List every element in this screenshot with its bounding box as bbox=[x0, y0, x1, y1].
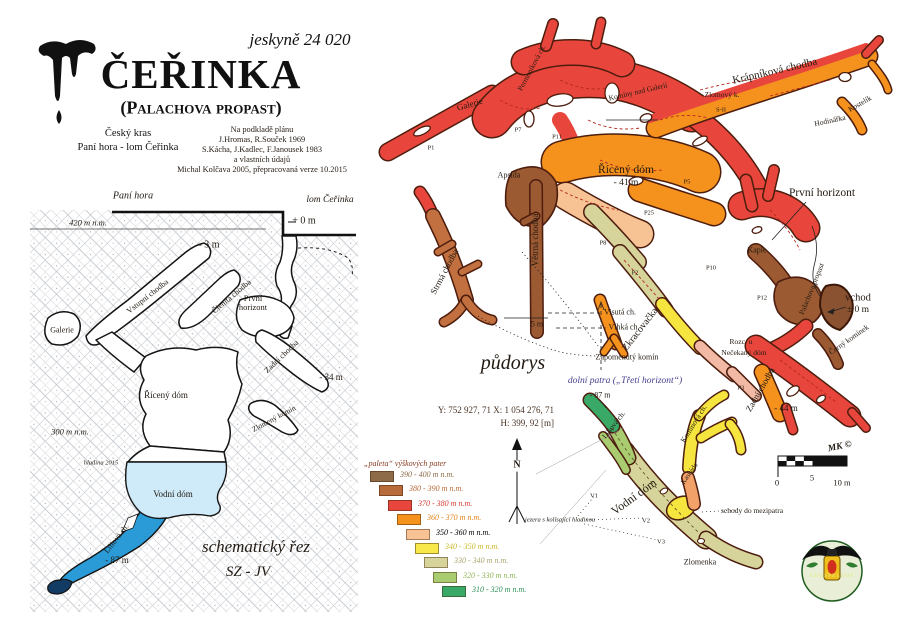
survey-coordinates: Y: 752 927, 71 X: 1 054 276, 71 H: 399, … bbox=[438, 404, 554, 430]
lower-title: dolní patra („Třetí horizont“) bbox=[568, 376, 682, 386]
cave-number: jeskyně 24 020 bbox=[249, 30, 350, 50]
survey-marker: P5 bbox=[684, 178, 691, 185]
survey-marker: P2 bbox=[632, 269, 639, 276]
elevation-line: H: 399, 92 [m] bbox=[438, 417, 554, 430]
plan-label: ± 0 m bbox=[847, 305, 869, 315]
section-label: lom Čeřinka bbox=[306, 195, 353, 205]
plan-label: Rozc. u bbox=[730, 338, 753, 346]
section-label: hladina 2015 bbox=[84, 459, 119, 466]
page-subtitle: (Palachova propast) bbox=[120, 98, 281, 119]
section-label: 420 m n.m. bbox=[69, 218, 107, 227]
lake-marker: V3 bbox=[657, 538, 665, 545]
north-arrow bbox=[509, 438, 525, 524]
survey-marker: P12 bbox=[757, 294, 767, 301]
coords-line: Y: 752 927, 71 X: 1 054 276, 71 bbox=[438, 404, 554, 417]
survey-marker: P25 bbox=[644, 209, 654, 216]
page-title: ČEŘINKA bbox=[101, 50, 302, 98]
section-label: Vodní dóm bbox=[153, 490, 193, 500]
plan-label: Řícený dóm bbox=[598, 164, 654, 176]
survey-marker: P10 bbox=[706, 264, 716, 271]
lower-label: schody do mezipatra bbox=[721, 507, 783, 515]
lake-marker: V1 bbox=[590, 492, 598, 499]
lake-marker: V2 bbox=[642, 517, 650, 524]
section-label: - 87 m bbox=[105, 556, 129, 566]
section-label: Galerie bbox=[50, 327, 74, 336]
plan-label: 5 m bbox=[531, 321, 543, 330]
plan-label: Visutá ch. bbox=[604, 309, 636, 318]
plan-label: První horizont bbox=[789, 187, 855, 199]
section-label: Řícený dóm bbox=[144, 391, 188, 401]
section-label: - 3 m bbox=[198, 241, 219, 252]
lower-label: Zlomenka bbox=[684, 559, 716, 568]
survey-marker: P11 bbox=[552, 133, 562, 140]
plan-label: Kaple bbox=[747, 247, 766, 256]
survey-marker: P3 bbox=[738, 384, 745, 391]
plan-label: Zlomový k. bbox=[705, 91, 740, 99]
lower-label: jezera s kolísající hladinou bbox=[525, 516, 595, 523]
plan-label: vchod bbox=[845, 292, 871, 303]
scalebar-zero: 0 bbox=[775, 478, 779, 487]
logo-text: GEOSPELEOS bbox=[810, 574, 855, 580]
plan-label: - 44 m bbox=[774, 404, 798, 414]
credits-text: Na podkladě plánu J.Hromas, R.Souček 196… bbox=[177, 125, 347, 175]
plan-drawing bbox=[388, 22, 888, 430]
plan-title: půdorys bbox=[481, 353, 545, 375]
survey-marker: P7 bbox=[515, 126, 522, 133]
survey-marker: P1 bbox=[428, 144, 435, 151]
north-label: N bbox=[512, 461, 521, 472]
club-logo bbox=[802, 541, 862, 601]
section-label: - 34 m bbox=[319, 373, 343, 383]
plan-label: - 41 m bbox=[614, 178, 639, 188]
stalactite-icon bbox=[39, 40, 96, 124]
section-label: + 0 m bbox=[292, 217, 315, 228]
section-label: 300 m n.m. bbox=[51, 427, 89, 436]
plan-label: Větrná chodba bbox=[531, 214, 541, 267]
plan-label: Apsida bbox=[498, 172, 521, 181]
region-text: Český kras Paní hora - lom Čeřinka bbox=[78, 127, 179, 155]
lower-label: - 87 m bbox=[590, 392, 611, 401]
section-label: První horizont bbox=[239, 294, 267, 312]
survey-marker: S-II bbox=[716, 106, 726, 113]
scalebar-end: 10 m bbox=[833, 478, 850, 487]
survey-marker: P8 bbox=[600, 239, 607, 246]
section-label: Paní hora bbox=[113, 192, 153, 203]
cave-map-sheet: jeskyně 24 020 ČEŘINKA (Palachova propas… bbox=[0, 0, 900, 636]
section-title: schematický řez bbox=[202, 538, 310, 556]
scalebar-mid: 5 bbox=[810, 473, 814, 482]
plan-label: Nečekaný dóm bbox=[721, 349, 766, 357]
section-orientation: SZ - JV bbox=[226, 564, 270, 580]
plan-label: Zapomenutý komín bbox=[596, 354, 659, 363]
